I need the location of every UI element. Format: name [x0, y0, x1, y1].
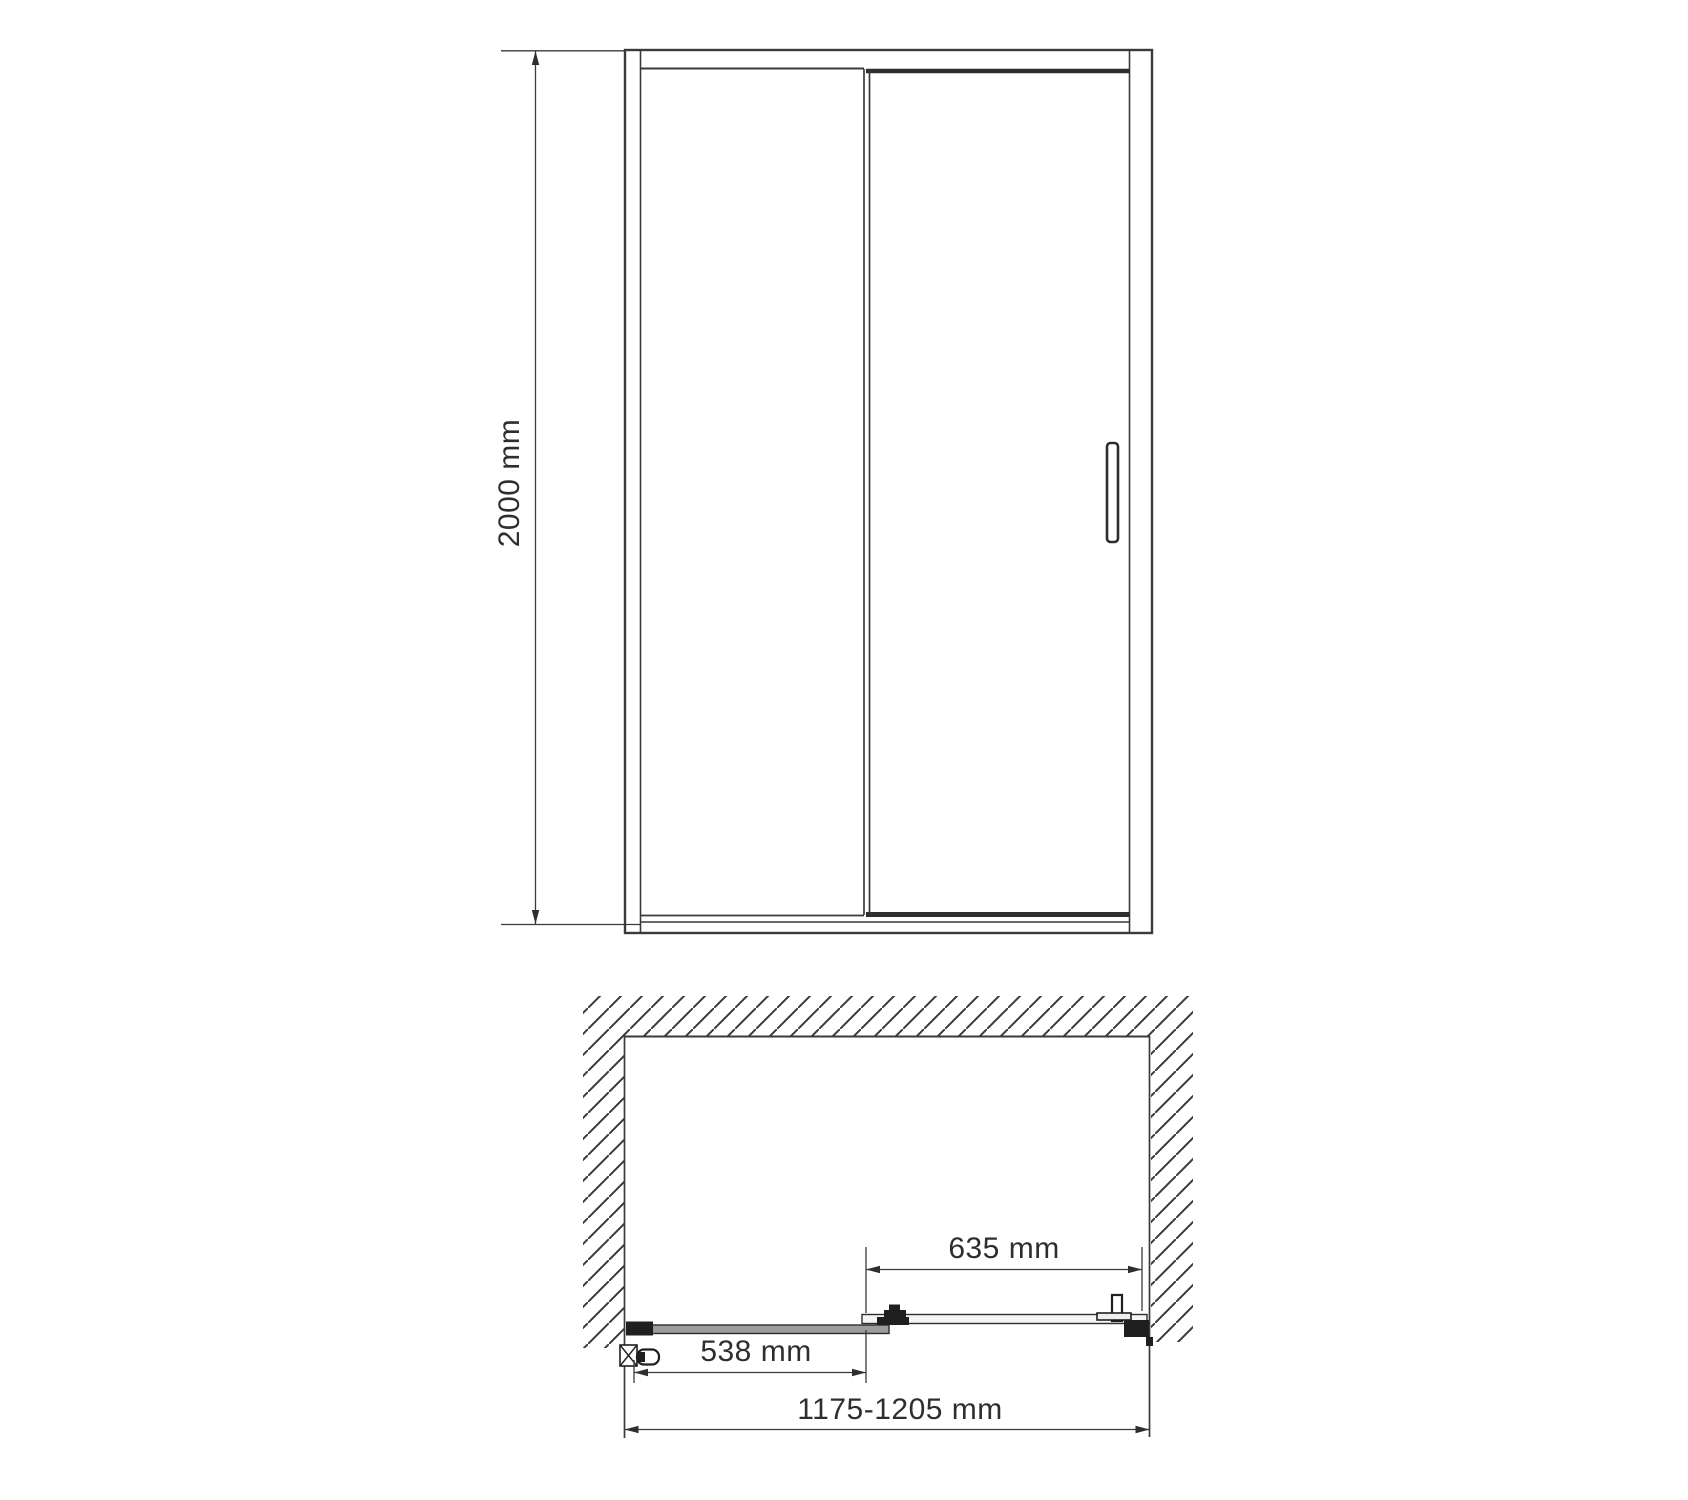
fixed-panel-plan: [627, 1325, 889, 1334]
plan-view: [583, 996, 1193, 1438]
left-clamp-pin: [638, 1352, 645, 1362]
overall-width-dimension: [625, 1426, 1150, 1433]
right-bracket-plate: [1097, 1313, 1131, 1320]
dim-total-arrow-right: [1136, 1426, 1150, 1433]
dim635-arrow-left: [866, 1266, 880, 1273]
sliding-door-dimension-label: 635 mm: [934, 1233, 1074, 1265]
right-end-hardware: [1097, 1295, 1153, 1346]
dim635-arrow-right: [1128, 1266, 1142, 1273]
technical-drawing-canvas: 2000 mm 635 mm 538 mm 1175-1205 mm: [0, 0, 1688, 1500]
overall-width-dimension-label: 1175-1205 mm: [790, 1394, 1010, 1426]
dim538-arrow-left: [634, 1369, 648, 1376]
right-wall-block: [1124, 1320, 1149, 1337]
height-dim-arrow-up: [532, 51, 539, 65]
drawing-svg: [0, 0, 1688, 1500]
wall-hatch: [583, 996, 1193, 1348]
roller-carriage-base: [877, 1317, 909, 1325]
left-end-hardware: [620, 1345, 659, 1366]
wall-profile-block: [626, 1322, 653, 1336]
wall-hatch-left: [583, 1037, 624, 1348]
door-handle: [1107, 443, 1118, 542]
frame-outline: [625, 50, 1152, 933]
roller-carriage-tab: [889, 1305, 900, 1311]
right-wall-step: [1146, 1337, 1153, 1346]
front-view: [501, 50, 1152, 933]
roller-carriage-body: [884, 1310, 906, 1317]
wall-hatch-back: [583, 996, 1193, 1037]
dim-total-arrow-left: [625, 1426, 639, 1433]
height-dimension-label: 2000 mm: [494, 413, 526, 553]
wall-hatch-right: [1151, 1037, 1193, 1342]
dim538-arrow-right: [852, 1369, 866, 1376]
fixed-panel-dimension-label: 538 mm: [686, 1336, 826, 1368]
height-dim-arrow-down: [532, 910, 539, 924]
